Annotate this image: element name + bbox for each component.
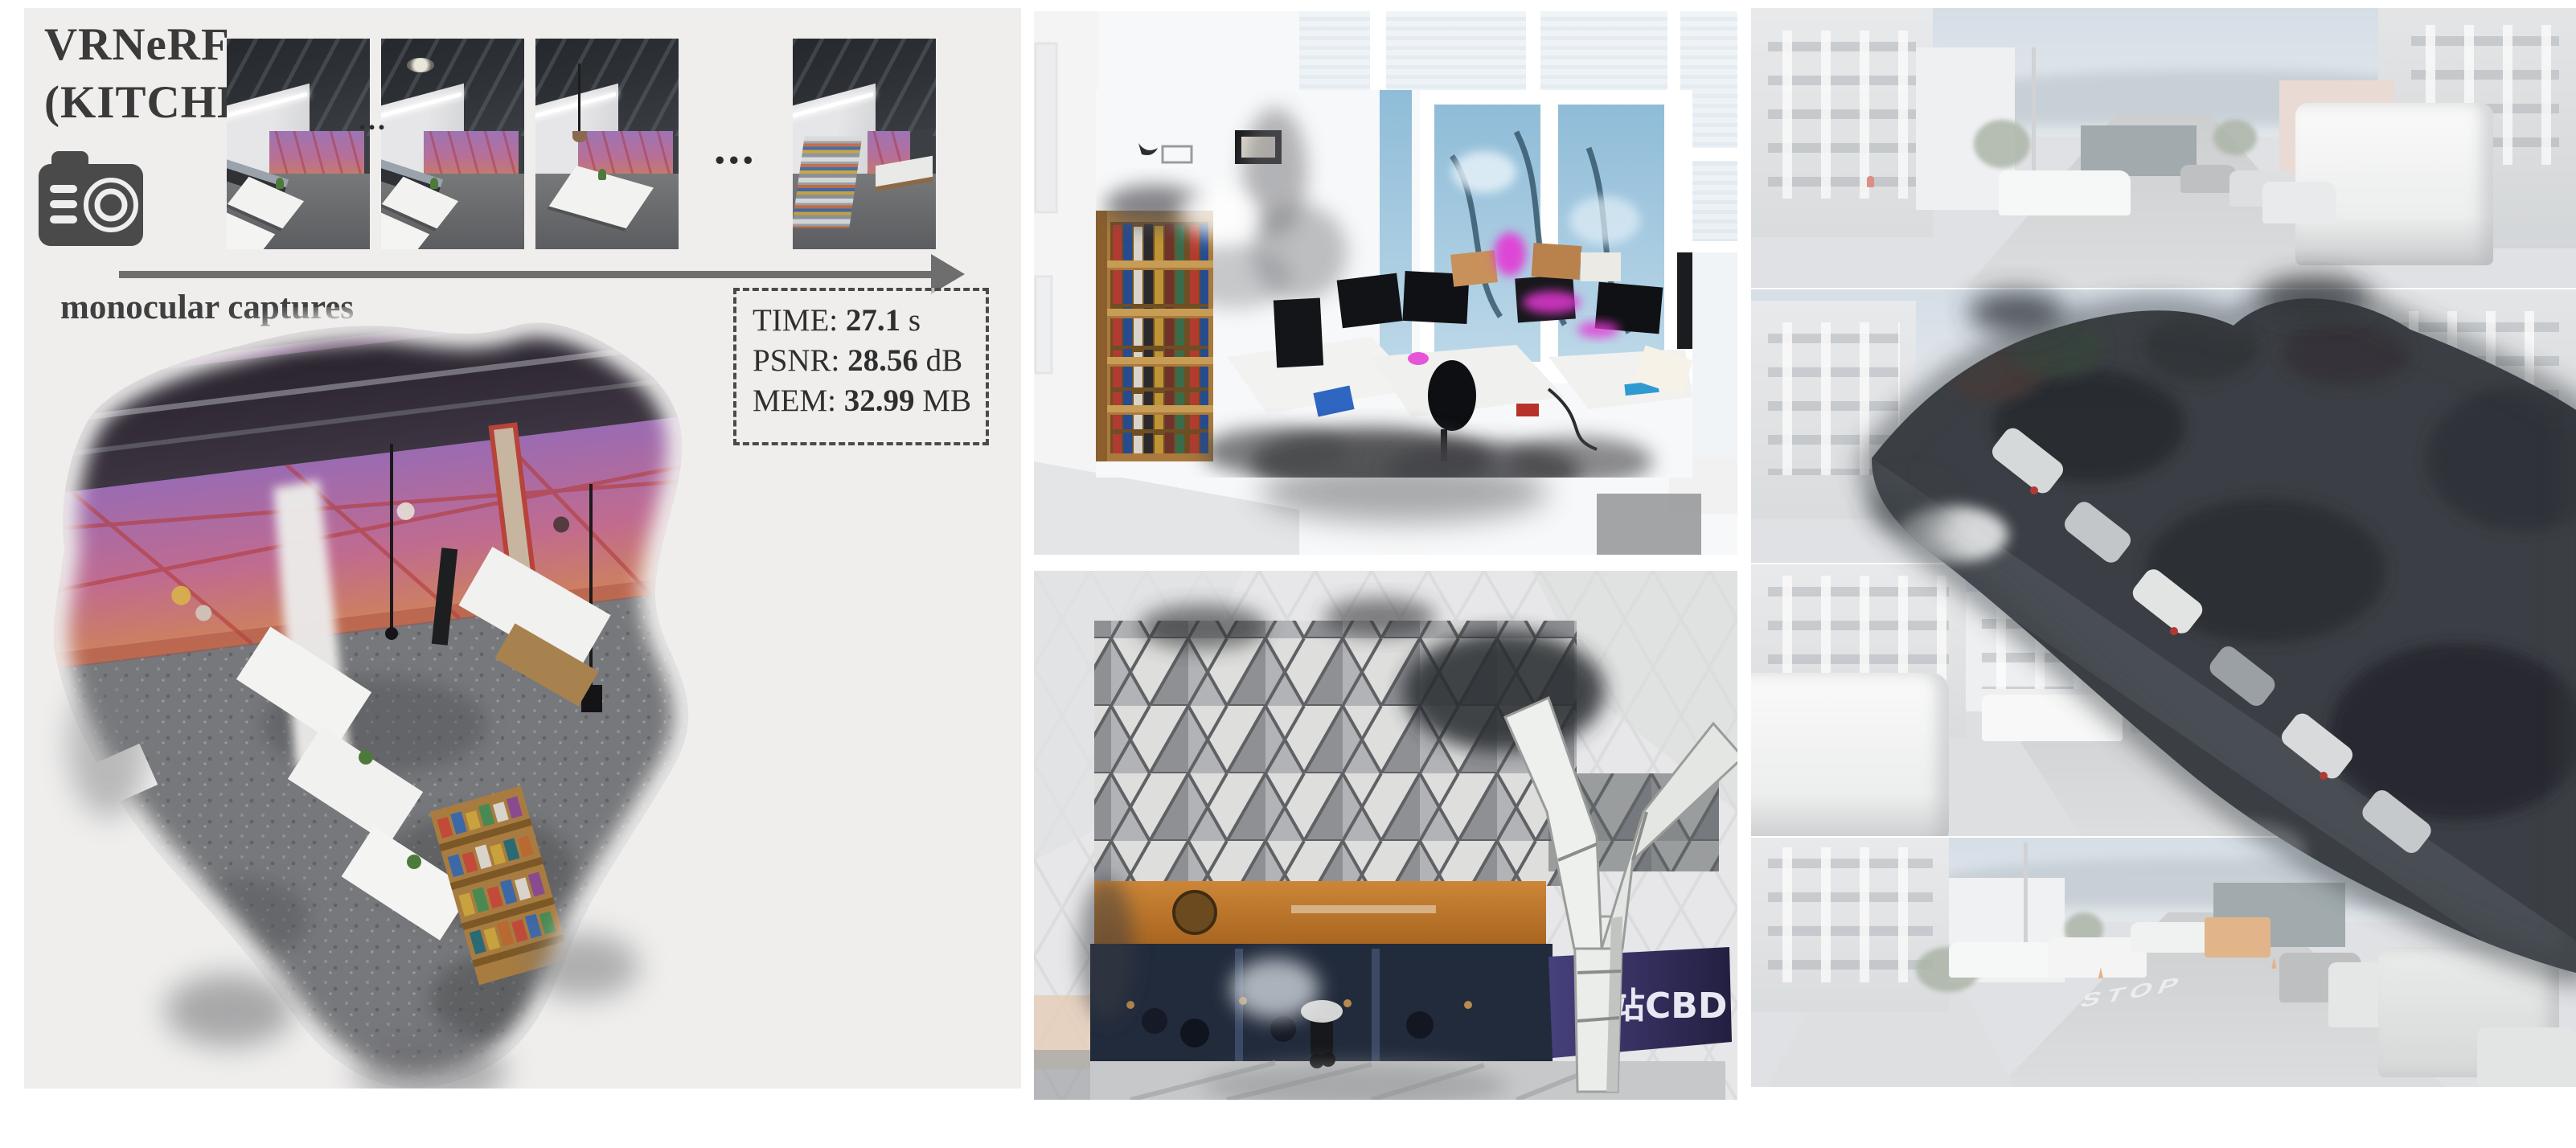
timeline-arrow <box>119 271 941 278</box>
capture-thumbnail-1 <box>227 39 370 249</box>
motorcycle <box>1311 1018 1333 1058</box>
kitchen-reconstruction-render <box>28 307 708 1089</box>
metric-psnr: PSNR: 28.56 dB <box>753 342 978 381</box>
street-panel: STOP <box>1751 8 2576 1087</box>
capture-thumbnail-2 <box>381 39 524 249</box>
street-photo-1 <box>1751 8 2576 288</box>
station-reconstruction-image: 北站CBD <box>1034 571 1737 1100</box>
street-photo-4: STOP <box>1751 838 2576 1087</box>
metrics-box: TIME: 27.1 s PSNR: 28.56 dB MEM: 32.99 M… <box>733 288 989 445</box>
metric-time: TIME: 27.1 s <box>753 302 978 341</box>
metric-mem: MEM: 32.99 MB <box>753 383 978 421</box>
capture-thumbnail-4 <box>793 39 936 249</box>
street-photo-3 <box>1751 564 2576 836</box>
office-reconstruction-image <box>1034 11 1737 555</box>
camera-icon <box>39 151 143 248</box>
street-photo-2 <box>1751 289 2576 563</box>
ellipsis-icon: ... <box>359 103 388 137</box>
ellipsis-icon: ... <box>714 121 757 174</box>
kitchen-panel: VRNeRF (KITCHEN) <box>24 8 1021 1089</box>
figure-root: VRNeRF (KITCHEN) <box>0 0 2576 1148</box>
office-render <box>1034 11 1737 555</box>
station-render: 北站CBD <box>1034 571 1737 1100</box>
capture-thumbnail-3 <box>535 39 679 249</box>
